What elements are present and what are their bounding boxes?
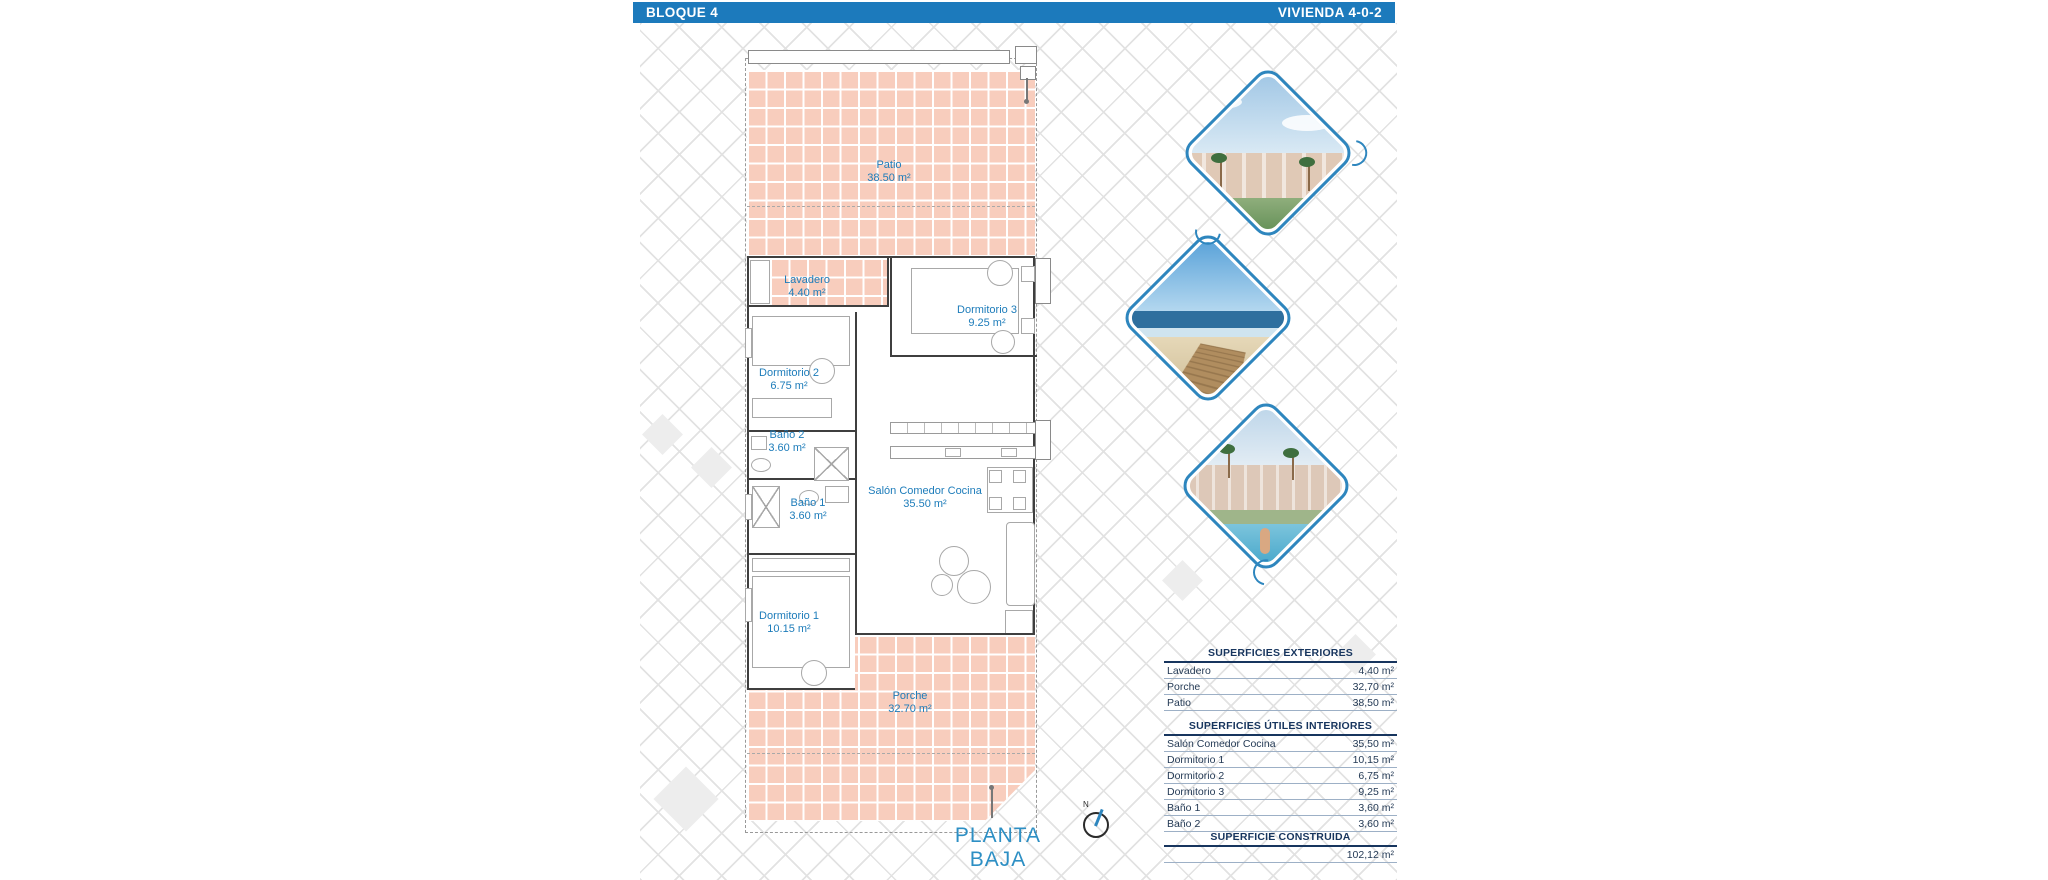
palm-icon [1219, 444, 1235, 454]
palm-trunk [1228, 452, 1230, 478]
wall [890, 258, 892, 357]
room-name: Dormitorio 1 [759, 610, 819, 622]
furniture-bed [752, 316, 850, 366]
room-name: Baño 2 [770, 429, 805, 441]
porche-dashed-line [747, 753, 1035, 754]
top-wall-segment [1015, 46, 1037, 64]
palm-icon [1211, 153, 1227, 163]
furniture-sink [825, 486, 849, 503]
table-row: Patio 38,50 m² [1164, 695, 1397, 711]
room-label-dormitorio1: Dormitorio 1 10.15 m² [759, 610, 819, 636]
table-row: Baño 1 3,60 m² [1164, 800, 1397, 816]
room-area: 32.70 m² [888, 703, 931, 715]
plan-title: PLANTA BAJA [938, 824, 1058, 872]
room-name: Lavadero [784, 274, 830, 286]
window [745, 494, 752, 520]
row-label: Baño 1 [1167, 802, 1200, 814]
room-label-salon: Salón Comedor Cocina 35.50 m² [868, 485, 982, 511]
table-superficies-exteriores: SUPERFICIES EXTERIORES Lavadero 4,40 m² … [1164, 647, 1397, 711]
room-name: Patio [876, 159, 901, 171]
furniture-pillow [801, 660, 827, 686]
furniture-armchair [1005, 610, 1033, 634]
palm-trunk [1308, 165, 1310, 191]
table-superficies-interiores: SUPERFICIES ÚTILES INTERIORES Salón Come… [1164, 720, 1397, 832]
furniture-pillow [991, 330, 1015, 354]
furniture-pillow [987, 260, 1013, 286]
room-label-dormitorio3: Dormitorio 3 9.25 m² [957, 304, 1017, 330]
furniture-toilet [751, 458, 771, 472]
room-name: Baño 1 [791, 497, 826, 509]
kitchen-hob [945, 448, 961, 457]
block-title: BLOQUE 4 [646, 5, 718, 20]
table-row: Porche 32,70 m² [1164, 679, 1397, 695]
row-value: 3,60 m² [1358, 818, 1394, 830]
furniture-sink [751, 436, 767, 450]
furniture-laundry [750, 260, 770, 304]
compass-icon: N [1083, 812, 1109, 838]
compass-north-label: N [1083, 800, 1089, 809]
surf [1127, 328, 1288, 337]
row-label: Salón Comedor Cocina [1167, 738, 1276, 750]
table-row: 102,12 m² [1164, 847, 1397, 863]
table-title: SUPERFICIES EXTERIORES [1164, 647, 1397, 663]
downpipe-line [1026, 78, 1028, 100]
downpipe-box [1020, 66, 1036, 80]
kitchen-counter [890, 422, 1037, 434]
row-value: 3,60 m² [1358, 802, 1394, 814]
row-value: 32,70 m² [1353, 681, 1394, 693]
furniture-nightstand [1021, 266, 1035, 282]
entry-line [991, 788, 993, 818]
row-value: 10,15 m² [1353, 754, 1394, 766]
room-area: 35.50 m² [903, 498, 946, 510]
furniture-nightstand [1021, 318, 1035, 334]
room-label-dormitorio2: Dormitorio 2 6.75 m² [759, 367, 819, 393]
swimmer-figure [1260, 528, 1270, 554]
table-row: Dormitorio 3 9,25 m² [1164, 784, 1397, 800]
furniture-chair [1013, 497, 1026, 510]
window [745, 588, 752, 622]
wall [749, 305, 889, 307]
wall [887, 258, 889, 307]
room-name: Salón Comedor Cocina [868, 485, 982, 497]
compass-needle [1094, 809, 1103, 827]
room-label-patio: Patio 38.50 m² [867, 159, 910, 185]
furniture-sofa [1006, 522, 1035, 606]
room-area: 38.50 m² [867, 172, 910, 184]
row-value: 9,25 m² [1358, 786, 1394, 798]
furniture-plant [931, 574, 953, 596]
downpipe-dot [1024, 99, 1029, 104]
row-label: Patio [1167, 697, 1191, 709]
palm-icon [1283, 448, 1299, 458]
room-name: Dormitorio 2 [759, 367, 819, 379]
window [745, 328, 752, 358]
table-row: Baño 2 3,60 m² [1164, 816, 1397, 832]
table-row: Dormitorio 2 6,75 m² [1164, 768, 1397, 784]
patio-dashed-line [747, 206, 1035, 207]
table-title: SUPERFICIE CONSTRUIDA [1164, 831, 1397, 847]
furniture-wardrobe [752, 558, 850, 572]
header-bar: BLOQUE 4 VIVIENDA 4-0-2 [633, 2, 1395, 23]
room-area: 10.15 m² [767, 623, 810, 635]
furniture-chair [989, 497, 1002, 510]
neighbour-stub [1035, 258, 1051, 304]
furniture-chair [1013, 470, 1026, 483]
sea [1127, 311, 1288, 328]
neighbour-stub [1035, 420, 1051, 460]
kitchen-sink [1001, 448, 1017, 457]
table-superficie-construida: SUPERFICIE CONSTRUIDA 102,12 m² [1164, 831, 1397, 863]
palm-trunk [1292, 456, 1294, 480]
entry-dot [989, 785, 994, 790]
room-area: 9.25 m² [968, 317, 1005, 329]
room-area: 6.75 m² [770, 380, 807, 392]
row-label: Dormitorio 1 [1167, 754, 1224, 766]
room-area: 3.60 m² [768, 442, 805, 454]
table-row: Dormitorio 1 10,15 m² [1164, 752, 1397, 768]
palm-icon [1299, 157, 1315, 167]
row-label: Lavadero [1167, 665, 1211, 677]
row-value: 6,75 m² [1358, 770, 1394, 782]
room-label-bano2: Baño 2 3.60 m² [768, 429, 805, 455]
furniture-shower [814, 447, 849, 481]
furniture-shower [752, 486, 780, 528]
buildings [1185, 465, 1346, 510]
row-label: Porche [1167, 681, 1200, 693]
floor-plan: Patio 38.50 m² Lavadero 4.40 m² Dormitor… [745, 58, 1037, 833]
table-row: Lavadero 4,40 m² [1164, 663, 1397, 679]
room-label-bano1: Baño 1 3.60 m² [789, 497, 826, 523]
room-name: Porche [893, 690, 928, 702]
top-wall [748, 50, 1010, 64]
room-area: 4.40 m² [788, 287, 825, 299]
dwelling-title: VIVIENDA 4-0-2 [1278, 5, 1382, 20]
brochure-page: BLOQUE 4 VIVIENDA 4-0-2 [0, 0, 2048, 880]
furniture-plant [957, 570, 991, 604]
row-label: Dormitorio 2 [1167, 770, 1224, 782]
row-value: 102,12 m² [1347, 849, 1394, 861]
palm-trunk [1220, 161, 1222, 189]
room-name: Dormitorio 3 [957, 304, 1017, 316]
wall [749, 553, 857, 555]
room-label-porche: Porche 32.70 m² [888, 690, 931, 716]
table-row: Salón Comedor Cocina 35,50 m² [1164, 736, 1397, 752]
room-area: 3.60 m² [789, 510, 826, 522]
room-label-lavadero: Lavadero 4.40 m² [784, 274, 830, 300]
row-value: 4,40 m² [1358, 665, 1394, 677]
row-label: Dormitorio 3 [1167, 786, 1224, 798]
wall [855, 633, 1035, 635]
table-title: SUPERFICIES ÚTILES INTERIORES [1164, 720, 1397, 736]
row-value: 38,50 m² [1353, 697, 1394, 709]
furniture-chair [989, 470, 1002, 483]
row-value: 35,50 m² [1353, 738, 1394, 750]
wall [890, 355, 1037, 357]
furniture-desk [752, 398, 832, 418]
row-label: Baño 2 [1167, 818, 1200, 830]
